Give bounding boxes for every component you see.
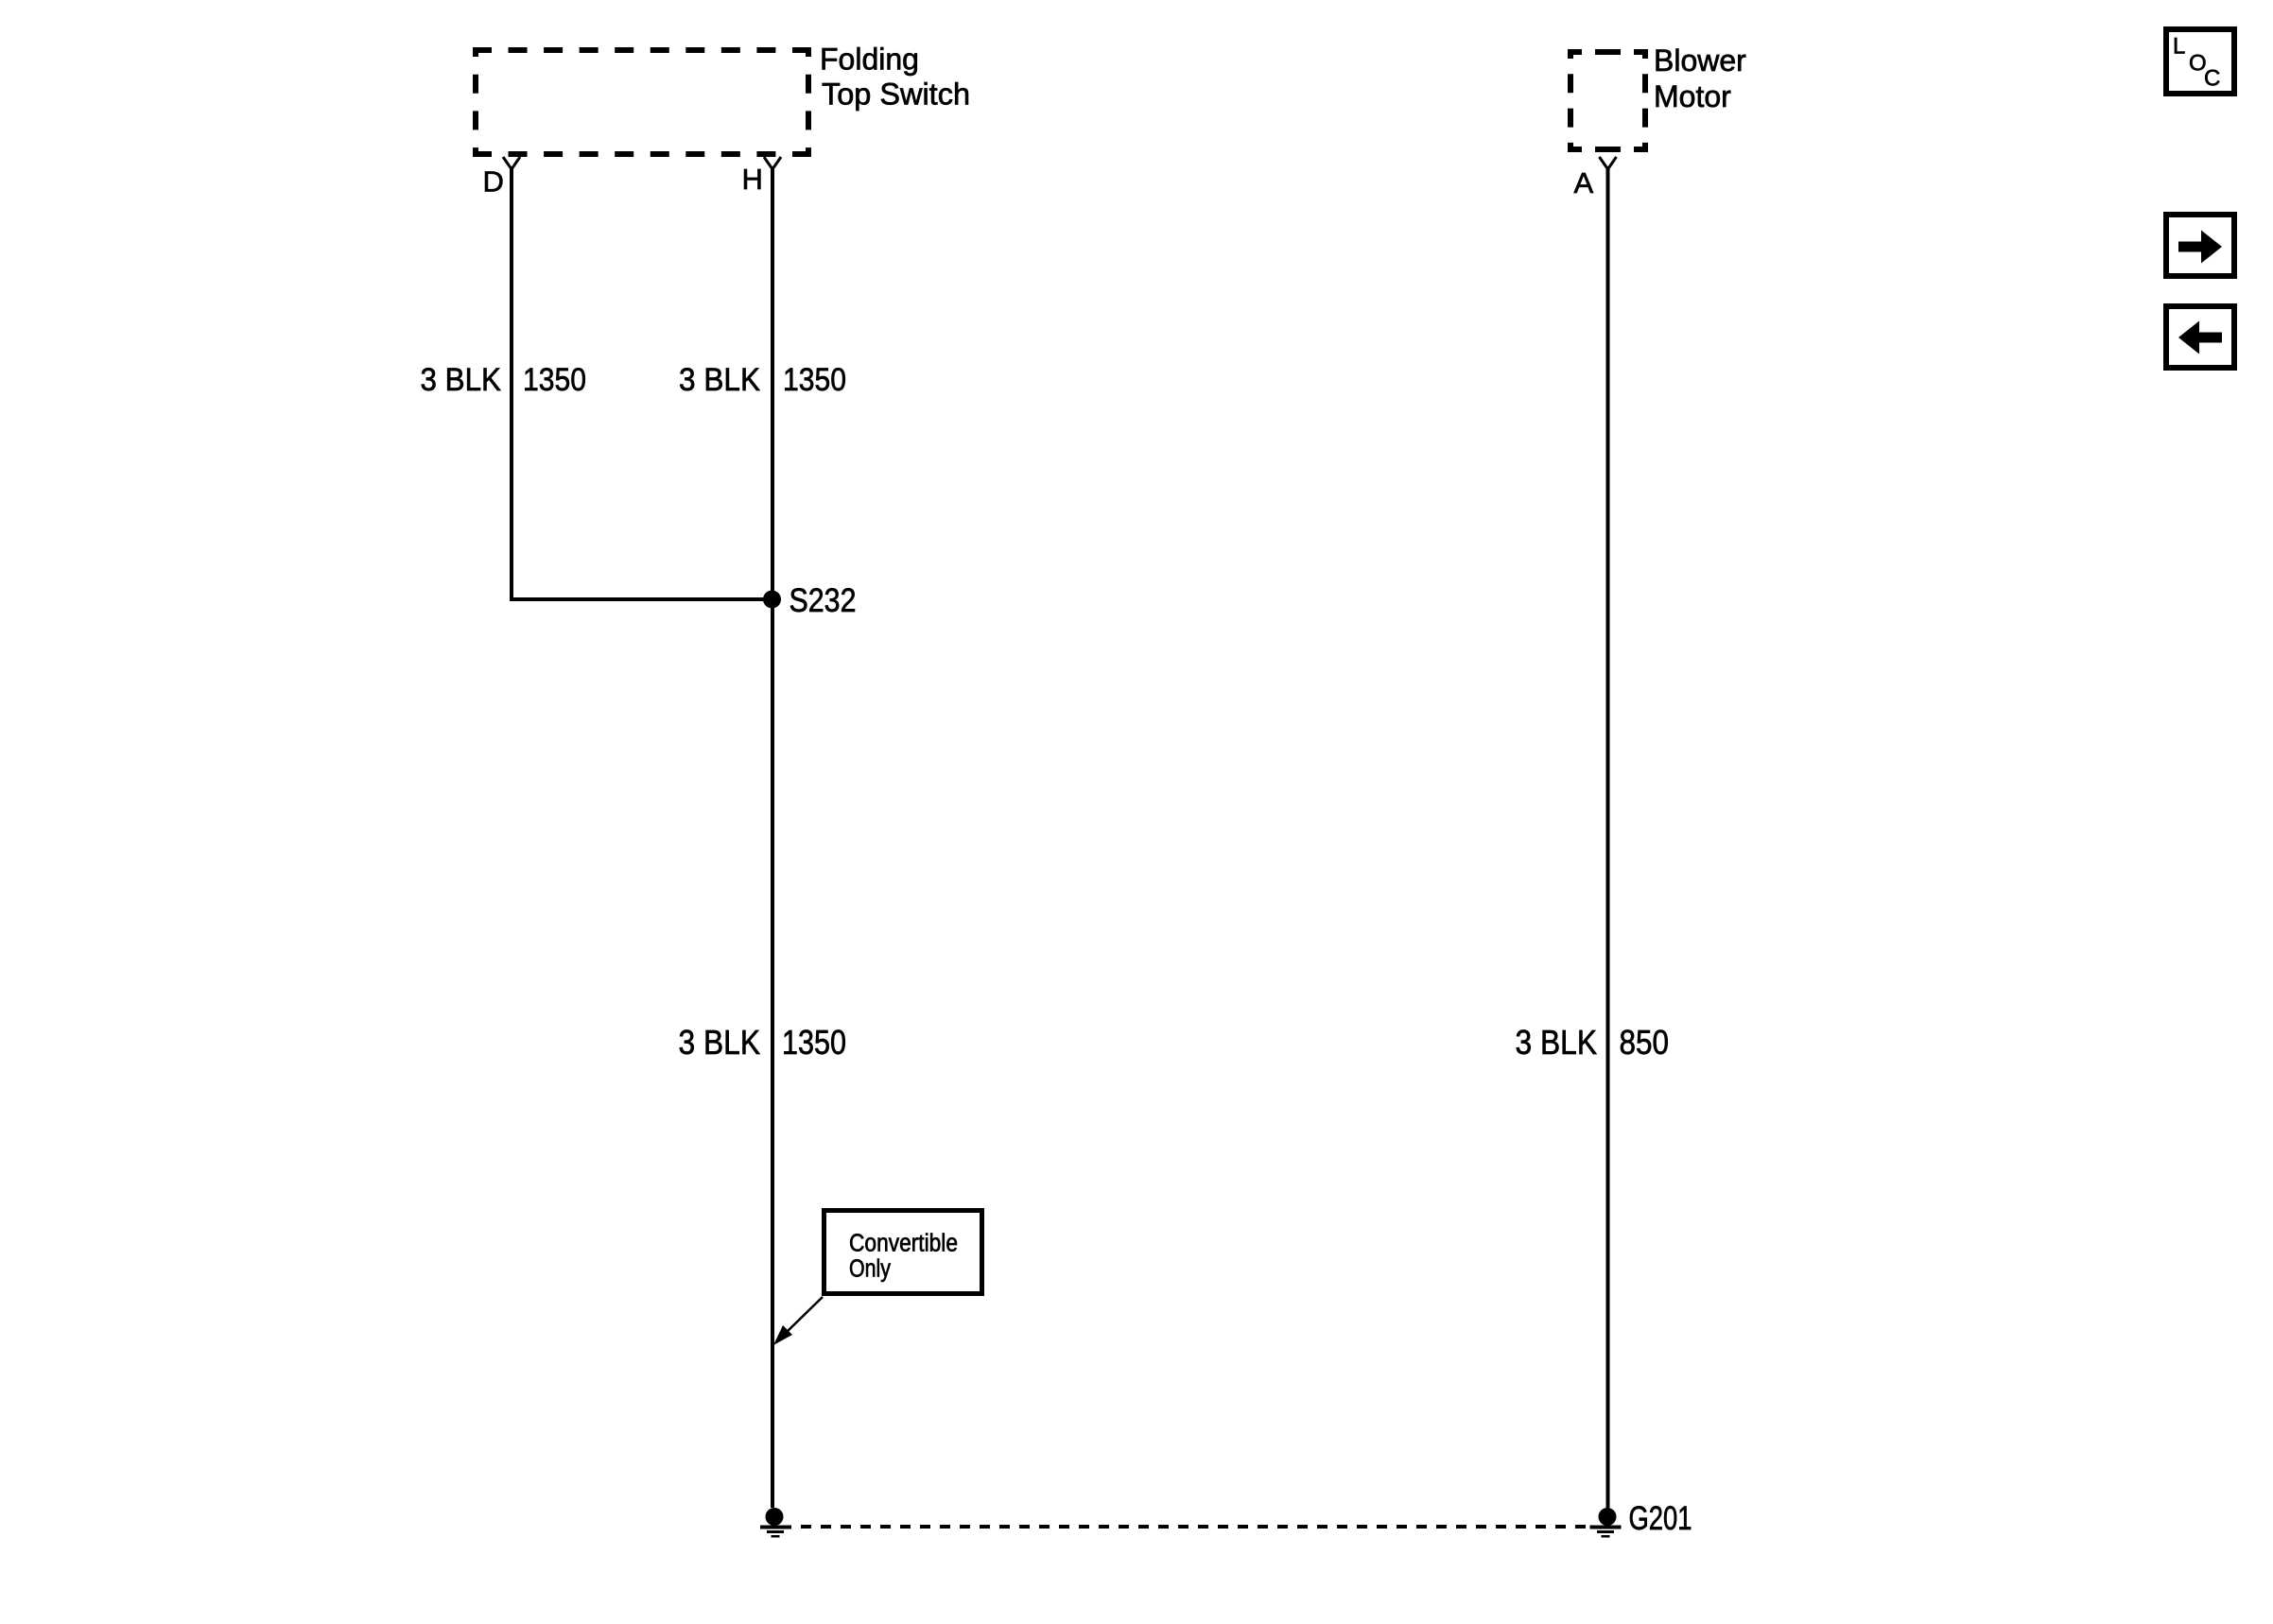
svg-text:Motor: Motor: [1654, 79, 1731, 113]
svg-text:H: H: [742, 163, 763, 196]
svg-text:L: L: [2173, 34, 2185, 60]
svg-text:3 BLK: 3 BLK: [679, 1023, 761, 1062]
svg-text:1350: 1350: [782, 1023, 846, 1062]
svg-text:Top Switch: Top Switch: [822, 78, 970, 112]
svg-text:G201: G201: [1629, 1500, 1692, 1537]
svg-text:A: A: [1574, 166, 1594, 199]
svg-text:850: 850: [1620, 1023, 1670, 1062]
svg-text:Blower: Blower: [1654, 43, 1746, 78]
svg-text:Only: Only: [849, 1256, 891, 1283]
svg-text:1350: 1350: [523, 362, 586, 398]
svg-text:S232: S232: [789, 582, 857, 619]
svg-text:Folding: Folding: [820, 43, 919, 77]
svg-text:D: D: [483, 165, 504, 199]
svg-text:3 BLK: 3 BLK: [1516, 1023, 1598, 1062]
svg-text:C: C: [2204, 66, 2220, 92]
svg-text:1350: 1350: [783, 362, 846, 398]
svg-text:3 BLK: 3 BLK: [679, 362, 760, 398]
svg-text:3 BLK: 3 BLK: [421, 362, 502, 398]
svg-text:Convertible: Convertible: [849, 1231, 958, 1257]
